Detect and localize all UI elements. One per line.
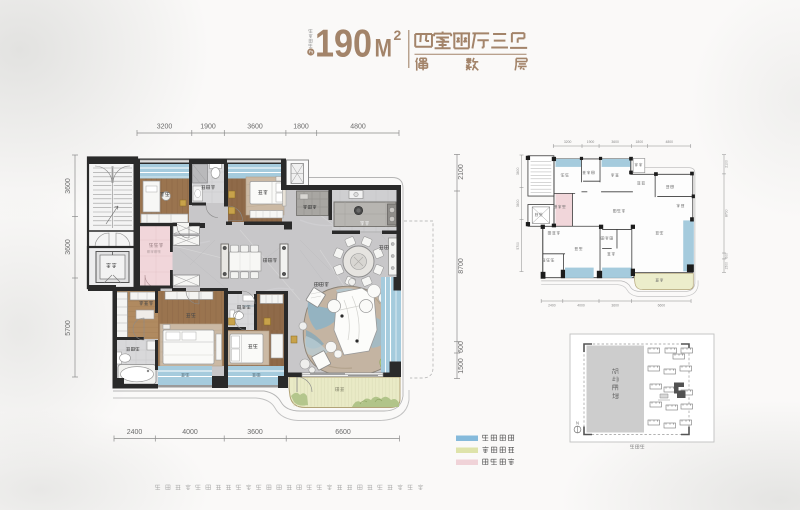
svg-text:600: 600 — [725, 253, 729, 259]
svg-text:1800: 1800 — [293, 124, 309, 131]
svg-text:8700: 8700 — [458, 258, 465, 274]
svg-text:5700: 5700 — [516, 242, 520, 250]
svg-text:1800: 1800 — [636, 140, 644, 144]
svg-text:5700: 5700 — [65, 320, 72, 336]
svg-text:3600: 3600 — [65, 178, 72, 194]
svg-text:2400: 2400 — [548, 304, 556, 308]
svg-text:4800: 4800 — [665, 140, 673, 144]
svg-text:1500: 1500 — [725, 262, 729, 270]
svg-text:2100: 2100 — [458, 164, 465, 180]
svg-text:3200: 3200 — [564, 140, 572, 144]
svg-text:1900: 1900 — [200, 124, 216, 131]
svg-text:3600: 3600 — [247, 429, 263, 436]
svg-text:3600: 3600 — [247, 124, 263, 131]
svg-text:4000: 4000 — [577, 304, 585, 308]
svg-text:3600: 3600 — [516, 167, 520, 175]
svg-text:190: 190 — [315, 23, 372, 66]
svg-text:600: 600 — [458, 341, 465, 353]
svg-text:2100: 2100 — [725, 160, 729, 168]
svg-text:N: N — [576, 421, 579, 426]
svg-text:3600: 3600 — [516, 199, 520, 207]
svg-text:4000: 4000 — [182, 429, 198, 436]
svg-text:4800: 4800 — [350, 124, 366, 131]
svg-text:2400: 2400 — [127, 429, 143, 436]
svg-text:3600: 3600 — [65, 239, 72, 255]
svg-text:2: 2 — [394, 27, 402, 43]
svg-text:3600: 3600 — [611, 304, 619, 308]
svg-text:M: M — [375, 35, 393, 63]
svg-text:6600: 6600 — [658, 304, 666, 308]
svg-text:3200: 3200 — [157, 124, 173, 131]
svg-text:6600: 6600 — [335, 429, 351, 436]
svg-text:3600: 3600 — [611, 140, 619, 144]
svg-text:1900: 1900 — [587, 140, 595, 144]
svg-text:1500: 1500 — [458, 358, 465, 374]
svg-text:8700: 8700 — [725, 209, 729, 217]
